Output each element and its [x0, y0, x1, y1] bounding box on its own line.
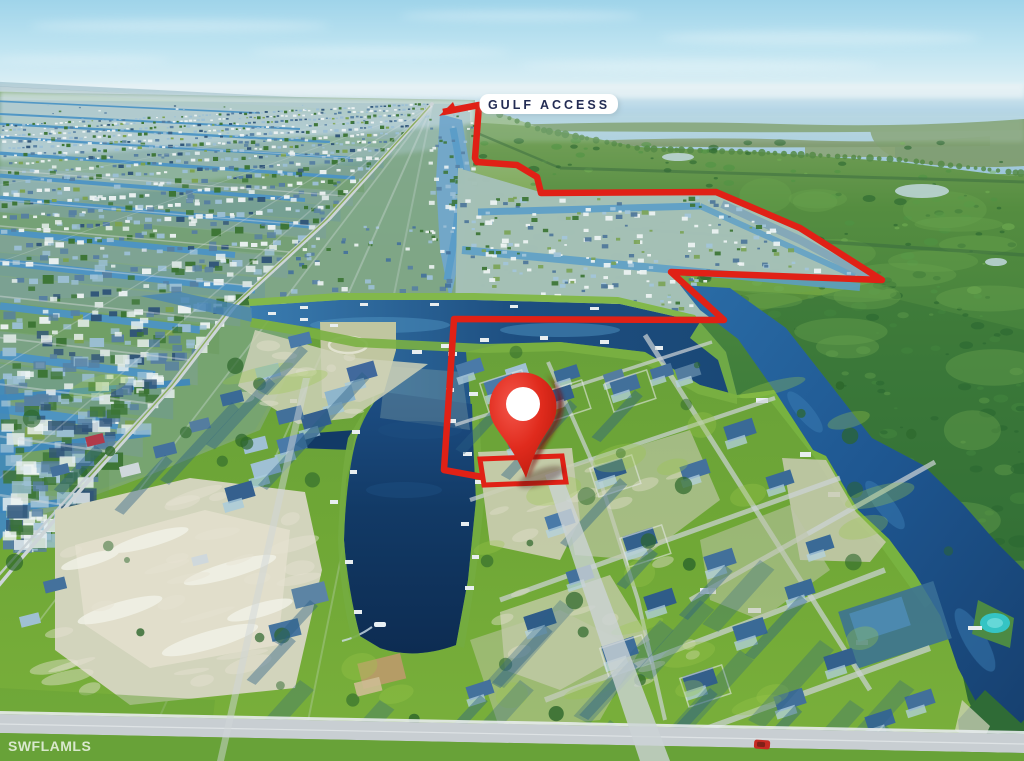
svg-text:GULF ACCESS: GULF ACCESS — [488, 98, 610, 112]
svg-text:SWFLAMLS: SWFLAMLS — [8, 738, 91, 754]
